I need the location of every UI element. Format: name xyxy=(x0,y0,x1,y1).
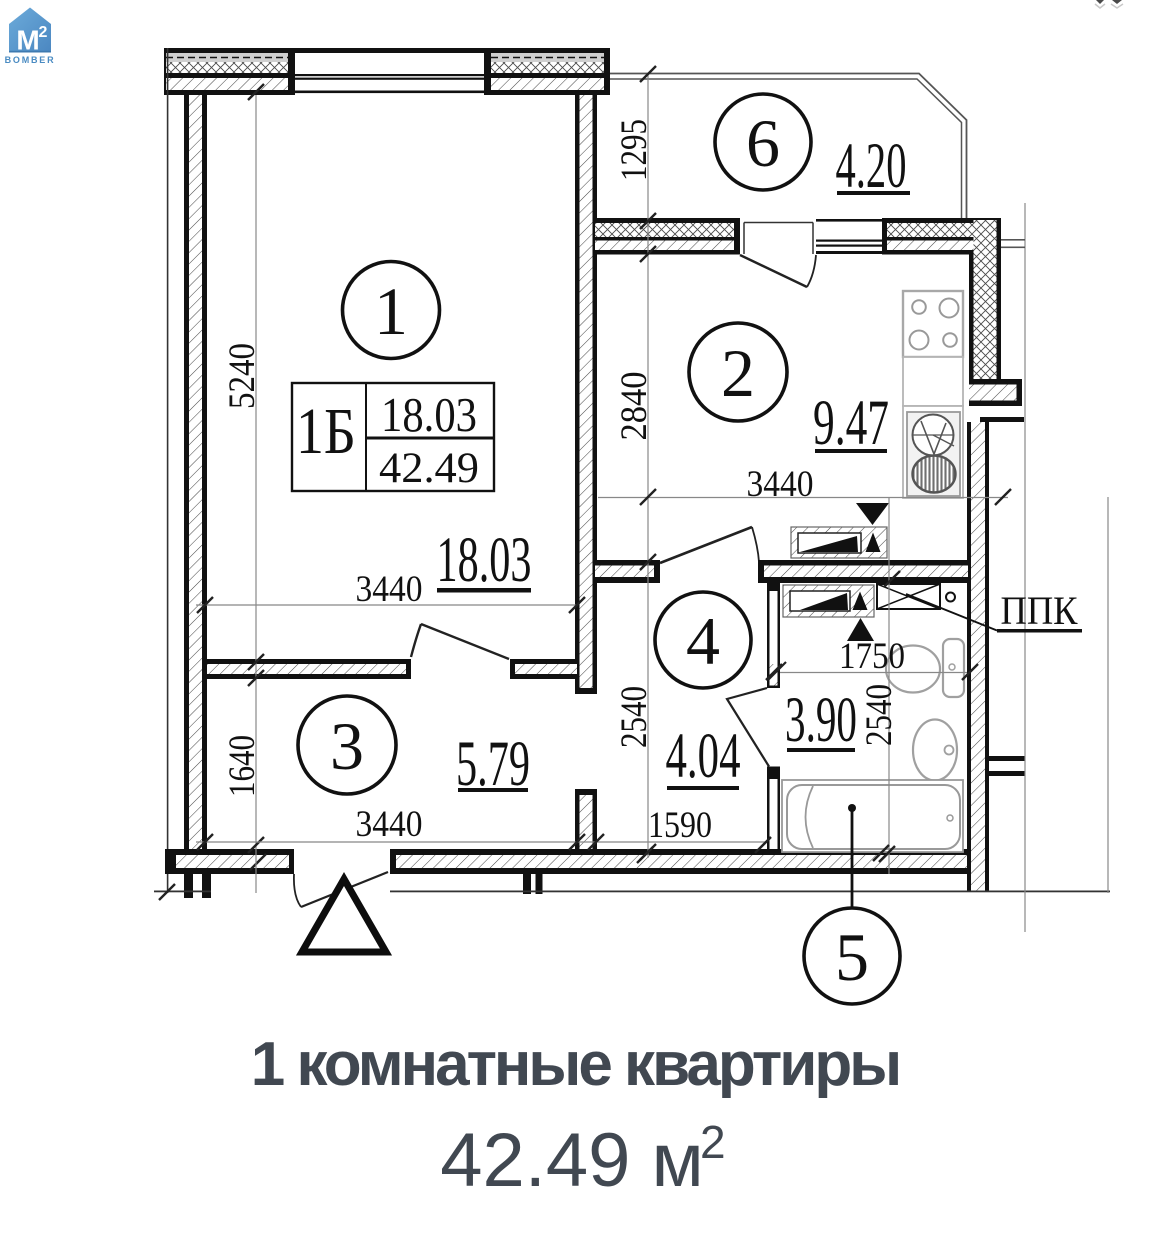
svg-text:3440: 3440 xyxy=(747,464,814,505)
svg-text:3440: 3440 xyxy=(356,569,423,610)
svg-text:BOMBER: BOMBER xyxy=(5,55,56,65)
svg-text:1295: 1295 xyxy=(614,119,655,181)
svg-text:2540: 2540 xyxy=(614,686,655,748)
svg-text:1 комнатные квартиры: 1 комнатные квартиры xyxy=(251,1030,899,1099)
svg-text:M: M xyxy=(16,25,39,56)
svg-text:9.47: 9.47 xyxy=(813,387,889,459)
svg-text:2: 2 xyxy=(721,335,755,411)
svg-text:3440: 3440 xyxy=(356,804,423,845)
svg-text:1750: 1750 xyxy=(839,636,905,677)
svg-text:1: 1 xyxy=(374,273,408,349)
svg-text:ППК: ППК xyxy=(1001,588,1078,633)
svg-text:3: 3 xyxy=(330,708,364,784)
svg-text:2840: 2840 xyxy=(614,372,655,441)
svg-text:18.03: 18.03 xyxy=(381,387,477,442)
svg-text:42.49 м: 42.49 м xyxy=(440,1118,704,1203)
svg-text:3.90: 3.90 xyxy=(785,684,857,756)
svg-text:5: 5 xyxy=(835,919,869,995)
svg-text:2: 2 xyxy=(39,24,48,41)
svg-text:18.03: 18.03 xyxy=(437,524,532,596)
svg-text:1590: 1590 xyxy=(648,805,712,846)
svg-text:4: 4 xyxy=(686,603,720,679)
svg-text:6: 6 xyxy=(746,105,780,181)
svg-text:2: 2 xyxy=(700,1116,726,1168)
svg-text:42.49: 42.49 xyxy=(379,445,479,492)
svg-text:5240: 5240 xyxy=(222,343,263,409)
svg-text:2540: 2540 xyxy=(859,684,900,746)
svg-text:1640: 1640 xyxy=(222,735,263,797)
svg-text:4.04: 4.04 xyxy=(666,720,741,792)
svg-text:1Б: 1Б xyxy=(296,395,356,468)
